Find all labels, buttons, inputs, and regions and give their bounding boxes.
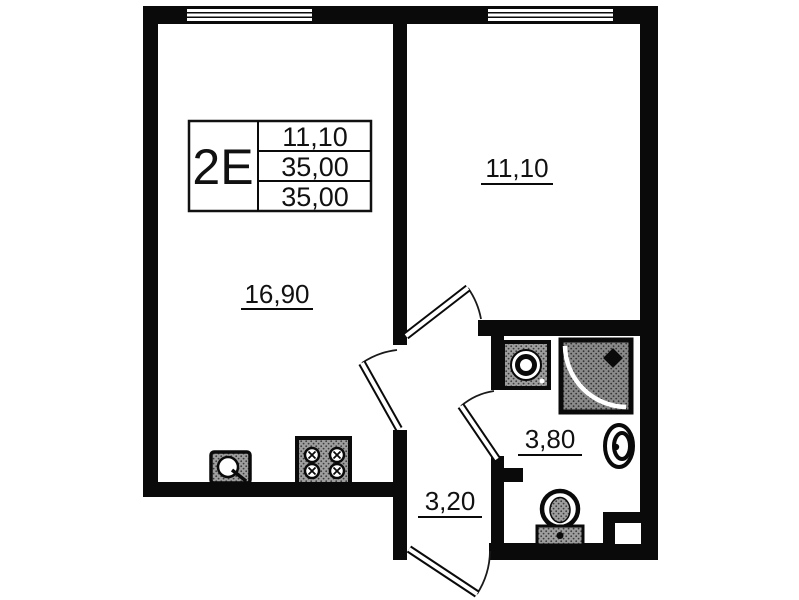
door-bathroom: [461, 391, 497, 459]
area-label-hallway: 3,20: [425, 486, 476, 516]
washbasin-drain: [613, 444, 619, 450]
stove-burner: [330, 464, 344, 478]
stove-burner: [305, 448, 319, 462]
wall-left: [143, 6, 158, 497]
window-stripe: [488, 14, 613, 17]
washbasin-icon: [605, 425, 633, 467]
window-stripe: [187, 14, 312, 17]
door-swing-arc: [468, 288, 481, 319]
door-living: [362, 350, 399, 429]
window-right-icon: [488, 9, 613, 21]
floor-plan-svg: 2E 11,10 35,00 35,00 16,90 11,10 3,80 3,…: [0, 0, 799, 600]
door-leaf-inner: [409, 549, 477, 594]
wall-right: [640, 6, 658, 558]
apartment-type-label: 2E: [192, 139, 253, 195]
stove-burner: [305, 464, 319, 478]
wall-bath-jog: [504, 468, 523, 482]
info-box-value-3: 35,00: [281, 182, 349, 212]
stove-icon: [297, 438, 350, 484]
door-swing-arc: [461, 391, 494, 406]
area-label-living: 16,90: [244, 279, 309, 309]
door-entrance: [409, 549, 490, 594]
wall-partition-lower: [393, 430, 407, 560]
info-box-value-2: 35,00: [281, 152, 349, 182]
door-leaf-inner: [461, 406, 497, 459]
info-box: 2E 11,10 35,00 35,00: [189, 121, 371, 212]
window-stripe: [488, 18, 613, 21]
area-label-bathroom: 3,80: [525, 424, 576, 454]
toilet-seat: [550, 498, 570, 523]
washing-machine-knob: [540, 379, 545, 384]
kitchen-sink-icon: [211, 452, 250, 483]
wall-bedroom-bottom: [478, 320, 658, 336]
stove-burner: [330, 448, 344, 462]
window-stripe: [187, 9, 312, 12]
door-leaf-inner: [362, 363, 399, 429]
toilet-icon: [537, 491, 583, 545]
floor-plan-page: 2E 11,10 35,00 35,00 16,90 11,10 3,80 3,…: [0, 0, 799, 600]
door-swing-arc: [477, 551, 490, 594]
info-box-value-1: 11,10: [282, 122, 348, 152]
duct-shaft-inner: [615, 523, 641, 544]
area-label-bedroom: 11,10: [485, 153, 548, 183]
toilet-tank-button: [557, 532, 564, 539]
washing-machine-drum-ring: [518, 357, 535, 374]
window-stripe: [488, 9, 613, 12]
shower-icon: [561, 340, 631, 412]
door-bedroom: [406, 288, 481, 336]
wall-living-bottom: [143, 482, 407, 497]
washing-machine-icon: [503, 342, 549, 388]
door-swing-arc: [362, 350, 397, 363]
wall-partition-upper: [393, 24, 407, 345]
window-left-icon: [187, 9, 312, 21]
door-leaf-inner: [406, 288, 468, 336]
window-stripe: [187, 18, 312, 21]
